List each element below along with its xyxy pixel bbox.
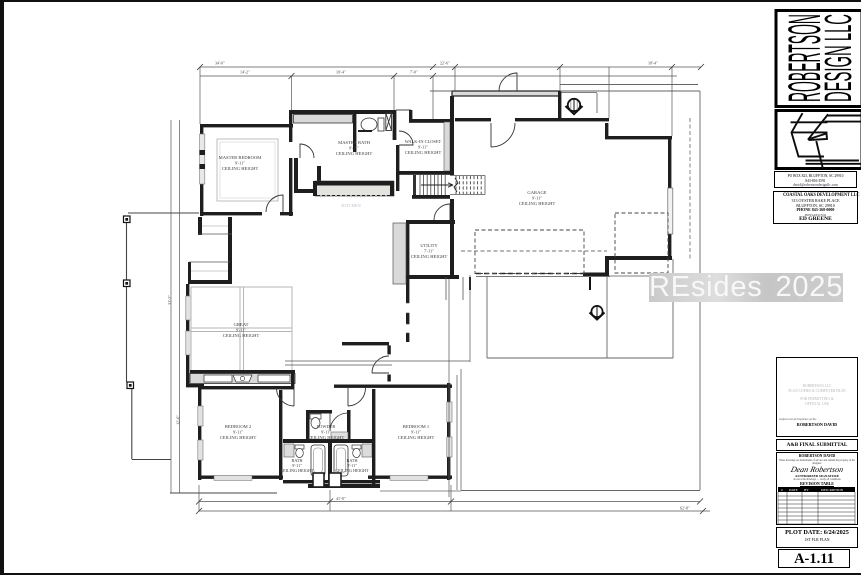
svg-text:10'-4": 10'-4" [336,70,346,75]
svg-text:GREAT: GREAT [234,322,249,327]
svg-text:7'-0": 7'-0" [410,70,418,75]
svg-text:CEILING HEIGHT: CEILING HEIGHT [519,201,556,206]
svg-text:9'-11": 9'-11" [349,146,359,151]
svg-text:9'-11": 9'-11" [236,328,246,333]
svg-text:POWDER: POWDER [317,424,336,429]
svg-text:CEILING HEIGHT: CEILING HEIGHT [405,150,442,155]
svg-text:#: # [781,488,783,492]
svg-text:CEILING HEIGHT: CEILING HEIGHT [411,254,448,259]
svg-text:KITCHEN: KITCHEN [341,203,361,208]
svg-text:BEDROOM 2: BEDROOM 2 [225,424,252,429]
svg-text:62'-8": 62'-8" [680,506,690,511]
svg-text:41'-0": 41'-0" [336,496,346,501]
svg-text:9'-11": 9'-11" [532,196,542,201]
svg-text:9'-11": 9'-11" [321,430,331,435]
svg-text:DATE: DATE [789,488,798,492]
svg-text:CEILING HEIGHT: CEILING HEIGHT [280,468,314,473]
svg-text:CEILING HEIGHT: CEILING HEIGHT [398,435,435,440]
svg-text:9'-11": 9'-11" [411,430,421,435]
svg-text:22'-6": 22'-6" [440,61,450,66]
svg-text:WALK-IN CLOSET: WALK-IN CLOSET [405,139,442,144]
svg-text:9'-11": 9'-11" [233,430,243,435]
svg-text:12'-6": 12'-6" [176,415,181,425]
svg-text:14'-2": 14'-2" [240,70,250,75]
svg-text:DESIGN LLC: DESIGN LLC [818,14,860,102]
svg-text:CEILING HEIGHT: CEILING HEIGHT [220,435,257,440]
svg-text:BEDROOM 1: BEDROOM 1 [403,424,430,429]
svg-text:CEILING HEIGHT: CEILING HEIGHT [336,151,373,156]
svg-text:18'-4": 18'-4" [648,61,658,66]
svg-text:7'-11": 7'-11" [424,249,434,254]
svg-text:9'-11": 9'-11" [418,145,428,150]
svg-text:MASTER BATH: MASTER BATH [338,140,370,145]
svg-text:DESCRIPTION: DESCRIPTION [821,488,844,492]
svg-text:MASTER BEDROOM: MASTER BEDROOM [219,155,262,160]
svg-text:CEILING HEIGHT: CEILING HEIGHT [223,333,260,338]
svg-text:BY: BY [804,488,809,492]
svg-text:UTILITY: UTILITY [420,243,438,248]
svg-text:9'-11": 9'-11" [235,161,245,166]
svg-text:GARAGE: GARAGE [527,190,546,195]
svg-text:31'-2": 31'-2" [167,295,172,305]
svg-text:CEILING HEIGHT: CEILING HEIGHT [222,166,259,171]
svg-text:34'-0": 34'-0" [215,61,225,66]
